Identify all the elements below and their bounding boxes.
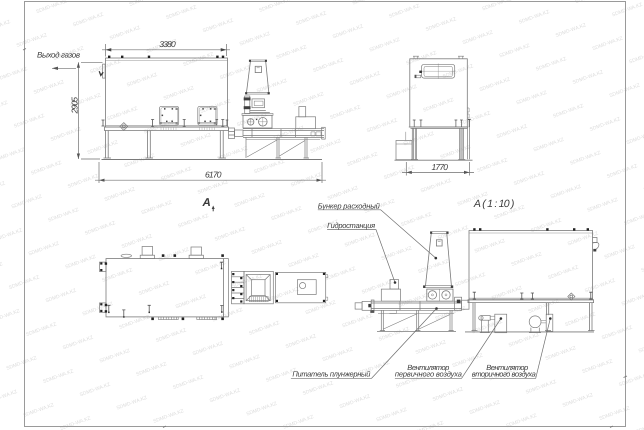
- svg-text:Бункер расходный: Бункер расходный: [318, 201, 381, 210]
- svg-text:6170: 6170: [205, 170, 222, 180]
- svg-text:Выход газов: Выход газов: [37, 51, 80, 60]
- svg-text:1770: 1770: [432, 162, 449, 172]
- svg-text:А ( 1 : 10 ): А ( 1 : 10 ): [473, 198, 515, 210]
- svg-text:вторичного воздуха: вторичного воздуха: [472, 370, 536, 379]
- svg-text:Гидростанция: Гидростанция: [327, 221, 375, 230]
- svg-text:А: А: [202, 197, 211, 209]
- svg-text:3380: 3380: [159, 39, 176, 49]
- svg-text:первичного воздуха: первичного воздуха: [395, 370, 462, 379]
- svg-text:2905: 2905: [69, 97, 79, 115]
- svg-text:Питатель плунжерный: Питатель плунжерный: [292, 369, 371, 378]
